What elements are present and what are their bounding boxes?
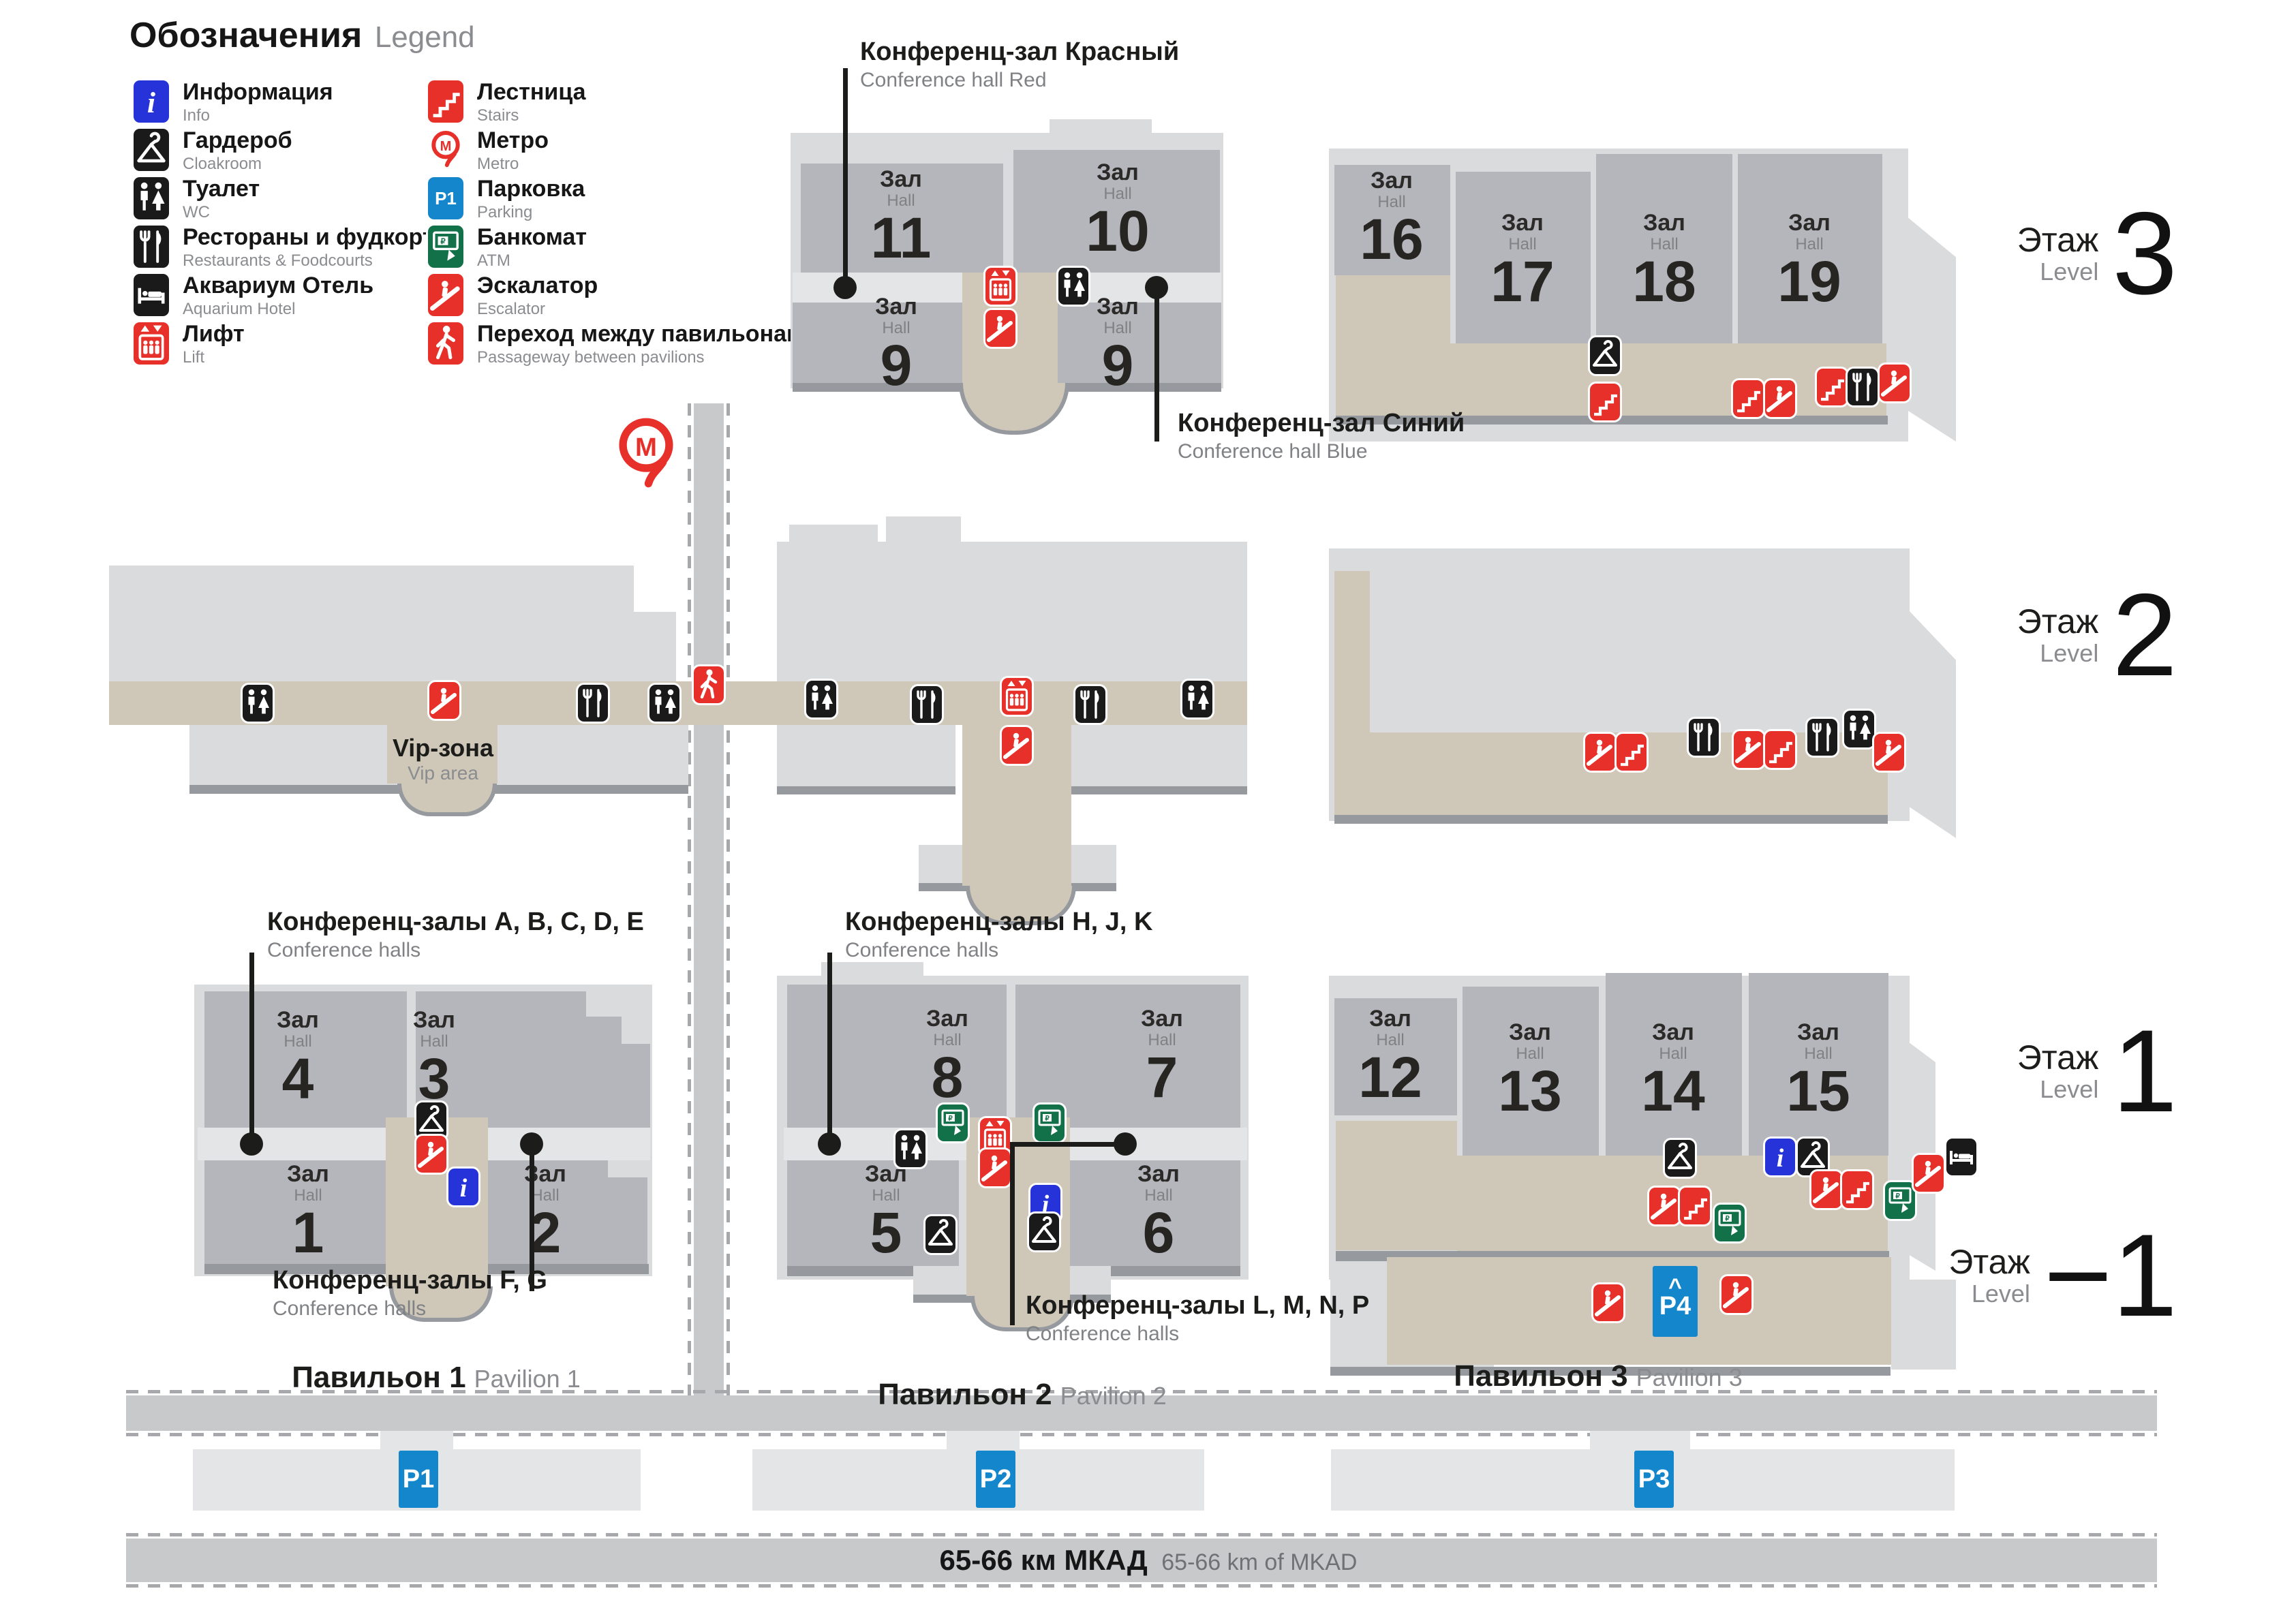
escalator-icon — [429, 682, 459, 719]
restaurant-icon — [134, 226, 169, 268]
legend-item-text: Переход между павильонамиPassageway betw… — [477, 322, 818, 368]
legend-label-en: ATM — [477, 250, 587, 271]
escalator-icon — [416, 1136, 446, 1173]
legend-label-ru: Парковка — [477, 177, 585, 202]
pavilion-label-ru: Павильон 1 — [292, 1361, 465, 1394]
callout-label-en: Conference hall Red — [860, 67, 1179, 93]
legend-item-cloakroom: ГардеробCloakroom — [134, 129, 292, 174]
legend-label-ru: Банкомат — [477, 226, 587, 250]
legend-item-text: ТуалетWC — [183, 177, 260, 223]
level-word-en: Level — [2017, 258, 2099, 285]
cloakroom-icon — [134, 129, 169, 171]
level-word-ru: Этаж — [2017, 1040, 2099, 1076]
escalator-icon — [1721, 1276, 1751, 1313]
level-number: 3 — [2112, 201, 2177, 307]
callout-line — [249, 953, 254, 1144]
legend-label-ru: Информация — [183, 80, 333, 105]
parking-badge-P2: P2 — [976, 1451, 1015, 1508]
hall-number: 5 — [865, 1205, 907, 1261]
atm-icon — [938, 1104, 968, 1141]
pavilion-label-en: Pavilion 1 — [474, 1365, 581, 1393]
callout-label-ru: Конференц-залы H, J, K — [845, 908, 1152, 938]
legend-label-ru: Лестница — [477, 80, 586, 105]
callout-line — [843, 68, 848, 288]
pavilion-label-ru: Павильон 2 — [878, 1378, 1052, 1411]
callout-label-en: Conference halls — [267, 938, 644, 963]
legend-label-en: Info — [183, 105, 333, 126]
parking-badge-P1: P1 — [399, 1451, 438, 1508]
legend-label-en: WC — [183, 202, 260, 223]
level-word-en: Level — [1948, 1280, 2030, 1308]
hall-label-15: ЗалHall15 — [1786, 1021, 1850, 1119]
legend-label-ru: Туалет — [183, 177, 260, 202]
level-word-en: Level — [2017, 640, 2099, 667]
legend-item-info: ИнформацияInfo — [134, 80, 333, 126]
hotel-icon — [134, 274, 169, 316]
escalator-icon — [1811, 1171, 1841, 1208]
pavilion-label: Павильон 1Pavilion 1 — [292, 1361, 580, 1395]
legend-label-ru: Эскалатор — [477, 274, 598, 298]
hall-label-9: ЗалHall9 — [875, 295, 917, 393]
wc-icon — [806, 681, 836, 717]
level-label-text: ЭтажLevel — [1948, 1244, 2030, 1307]
wc-icon — [649, 685, 679, 722]
stairs-icon — [1617, 734, 1647, 771]
hall-number: 1 — [287, 1205, 329, 1261]
parking-badge-P3: P3 — [1634, 1451, 1674, 1508]
callout-label-ru: Конференц-залы A, B, C, D, E — [267, 908, 644, 938]
hall-word-ru: Зал — [1498, 1021, 1561, 1045]
mkad-label-ru: 65-66 км МКАД — [940, 1544, 1148, 1576]
escalator-icon — [1002, 727, 1032, 764]
hall-label-4: ЗалHall4 — [277, 1008, 319, 1107]
hall-word-ru: Зал — [287, 1162, 329, 1187]
level-word-ru: Этаж — [1948, 1244, 2030, 1280]
restaurant-icon — [912, 686, 942, 723]
callout-dot — [1114, 1132, 1137, 1156]
callout-line — [1010, 1142, 1127, 1147]
legend-item-restaurant: Рестораны и фудкортыRestaurants & Foodco… — [134, 226, 454, 271]
legend-label-en: Aquarium Hotel — [183, 298, 373, 320]
hall-word-ru: Зал — [1097, 295, 1139, 320]
hall-label-19: ЗалHall19 — [1777, 211, 1841, 309]
stairs-icon — [1842, 1171, 1872, 1208]
vip-area-label: Vip-зона Vip area — [393, 735, 493, 784]
hall-word-ru: Зал — [875, 295, 917, 320]
hall-label-3: ЗалHall3 — [413, 1008, 455, 1107]
hall-label-6: ЗалHall6 — [1137, 1162, 1180, 1261]
callout-label: Конференц-залы L, M, N, PConference hall… — [1026, 1291, 1369, 1346]
callout-label: Конференц-залы F, GConference halls — [273, 1266, 547, 1321]
legend-item-text: МетроMetro — [477, 129, 549, 174]
level-word-ru: Этаж — [2017, 222, 2099, 258]
hall-word-ru: Зал — [1360, 169, 1423, 194]
legend-label-ru: Метро — [477, 129, 549, 153]
legend-item-passage: Переход между павильонамиPassageway betw… — [428, 322, 818, 368]
metro-pin-icon — [612, 414, 680, 497]
mkad-label: 65-66 км МКАД 65-66 km of MKAD — [940, 1544, 1358, 1577]
level-label-text: ЭтажLevel — [2017, 1040, 2099, 1102]
hall-number: 4 — [277, 1051, 319, 1107]
legend-item-text: ГардеробCloakroom — [183, 129, 292, 174]
legend-label-ru: Гардероб — [183, 129, 292, 153]
legend-item-text: ЭскалаторEscalator — [477, 274, 598, 320]
hall-word-ru: Зал — [1632, 211, 1696, 236]
hall-label-14: ЗалHall14 — [1641, 1021, 1704, 1119]
legend-title-ru: Обозначения — [129, 16, 362, 55]
vip-label-en: Vip area — [393, 762, 493, 785]
stairs-icon — [1733, 380, 1763, 417]
passage-icon — [694, 666, 724, 703]
hall-word-ru: Зал — [1358, 1007, 1422, 1032]
restaurant-icon — [1848, 369, 1878, 405]
legend-item-text: Рестораны и фудкортыRestaurants & Foodco… — [183, 226, 454, 271]
parking-badge-label: P3 — [1638, 1466, 1670, 1492]
hall-label-17: ЗалHall17 — [1490, 211, 1554, 309]
cloakroom-icon — [1029, 1214, 1059, 1250]
hall-number: 16 — [1360, 211, 1423, 267]
callout-line — [1154, 288, 1159, 442]
hall-word-ru: Зал — [1777, 211, 1841, 236]
lift-icon — [985, 268, 1015, 305]
callout-dot — [240, 1132, 263, 1156]
lift-icon — [134, 322, 169, 365]
pavilion-label-en: Pavilion 3 — [1636, 1363, 1743, 1391]
lift-icon — [1002, 678, 1032, 715]
hall-word-ru: Зал — [1786, 1021, 1850, 1045]
hall-word-ru: Зал — [277, 1008, 319, 1033]
stairs-icon — [1817, 369, 1847, 405]
legend-item-wc: ТуалетWC — [134, 177, 260, 223]
vip-label-ru: Vip-зона — [393, 735, 493, 762]
legend-item-text: ЛестницаStairs — [477, 80, 586, 126]
stairs-icon — [1680, 1188, 1710, 1224]
parking-badge-label: P2 — [980, 1466, 1011, 1492]
escalator-icon — [1765, 380, 1795, 417]
callout-dot — [520, 1132, 543, 1156]
legend-item-text: ПарковкаParking — [477, 177, 585, 223]
legend-label-en: Lift — [183, 347, 245, 368]
callout-label: Конференц-залы A, B, C, D, EConference h… — [267, 908, 644, 963]
legend-item-text: ИнформацияInfo — [183, 80, 333, 126]
escalator-icon — [1734, 731, 1764, 768]
wc-icon — [1182, 681, 1212, 717]
pavilion-label-ru: Павильон 3 — [1454, 1359, 1627, 1393]
hall-label-10: ЗалHall10 — [1086, 161, 1149, 259]
level-word-en: Level — [2017, 1076, 2099, 1103]
hall-label-16: ЗалHall16 — [1360, 169, 1423, 267]
legend-label-en: Parking — [477, 202, 585, 223]
pavilion-label: Павильон 3Pavilion 3 — [1454, 1359, 1742, 1393]
cloakroom-icon — [1665, 1140, 1695, 1177]
callout-label-ru: Конференц-залы F, G — [273, 1266, 547, 1296]
wc-icon — [896, 1130, 925, 1167]
atm-icon — [1035, 1104, 1065, 1141]
callout-label-ru: Конференц-залы L, M, N, P — [1026, 1291, 1369, 1321]
parking-badge-label: P1 — [403, 1466, 434, 1492]
level-label-text: ЭтажLevel — [2017, 604, 2099, 666]
level-label-3: ЭтажLevel3 — [2017, 201, 2177, 307]
hall-word-ru: Зал — [926, 1007, 968, 1032]
hall-number: 9 — [1097, 337, 1139, 393]
level-label-−1: ЭтажLevel−1 — [1948, 1223, 2177, 1329]
parking-roof-glyph: ^ — [1668, 1284, 1682, 1292]
escalator-icon — [980, 1149, 1010, 1186]
legend-label-ru: Лифт — [183, 322, 245, 347]
callout-dot — [1145, 276, 1168, 299]
hall-label-5: ЗалHall5 — [865, 1162, 907, 1261]
callout-label: Конференц-зал КрасныйConference hall Red — [860, 37, 1179, 93]
restaurant-icon — [1075, 686, 1105, 723]
level-word-ru: Этаж — [2017, 604, 2099, 640]
hall-word-ru: Зал — [1141, 1007, 1183, 1032]
legend-label-en: Passageway between pavilions — [477, 347, 818, 368]
hall-number: 19 — [1777, 253, 1841, 309]
floor-plan-canvas: i — [0, 0, 2296, 1623]
stairs-icon — [1765, 731, 1795, 768]
hall-label-9: ЗалHall9 — [1097, 295, 1139, 393]
callout-dot — [818, 1132, 841, 1156]
legend-item-escalator: ЭскалаторEscalator — [428, 274, 598, 320]
legend-item-atm: БанкоматATM — [428, 226, 587, 271]
hall-number: 6 — [1137, 1205, 1180, 1261]
atm-icon — [428, 226, 463, 268]
stairs-icon — [1590, 384, 1620, 420]
level-label-text: ЭтажLevel — [2017, 222, 2099, 285]
hall-number: 9 — [875, 337, 917, 393]
wc-icon — [243, 685, 273, 722]
cloakroom-icon — [1798, 1139, 1828, 1175]
info-icon — [1765, 1139, 1795, 1175]
hall-label-11: ЗалHall11 — [871, 168, 932, 266]
cloakroom-icon — [416, 1102, 446, 1139]
callout-line — [1010, 1142, 1015, 1325]
legend-label-en: Metro — [477, 153, 549, 174]
legend-title-en: Legend — [375, 20, 475, 54]
metro-icon — [428, 129, 463, 172]
escalator-icon — [428, 274, 463, 316]
level-number: −1 — [2044, 1223, 2177, 1329]
level-label-1: ЭтажLevel1 — [2017, 1019, 2177, 1124]
hall-word-ru: Зал — [1490, 211, 1554, 236]
level-label-2: ЭтажLevel2 — [2017, 583, 2177, 688]
hall-number: 7 — [1141, 1049, 1183, 1105]
hall-label-13: ЗалHall13 — [1498, 1021, 1561, 1119]
parking-icon: P1 — [428, 177, 463, 219]
legend-item-text: Аквариум ОтельAquarium Hotel — [183, 274, 373, 320]
info-icon — [448, 1169, 478, 1205]
legend-label-en: Stairs — [477, 105, 586, 126]
legend-item-metro: МетроMetro — [428, 129, 549, 174]
wc-icon — [1844, 711, 1874, 747]
hall-number: 10 — [1086, 203, 1149, 259]
callout-line — [827, 953, 832, 1144]
hall-word-ru: Зал — [1086, 161, 1149, 185]
hall-label-12: ЗалHall12 — [1358, 1007, 1422, 1105]
hall-label-18: ЗалHall18 — [1632, 211, 1696, 309]
callout-label-ru: Конференц-зал Синий — [1178, 409, 1465, 439]
escalator-icon — [1585, 734, 1615, 771]
pavilion-label-en: Pavilion 2 — [1060, 1382, 1167, 1410]
hotel-icon — [1946, 1139, 1976, 1175]
hall-number: 3 — [413, 1051, 455, 1107]
legend-label-ru: Аквариум Отель — [183, 274, 373, 298]
restaurant-icon — [1807, 719, 1837, 756]
legend-item-stairs: ЛестницаStairs — [428, 80, 586, 126]
pavilion-label: Павильон 2Pavilion 2 — [878, 1378, 1166, 1412]
callout-label-en: Conference hall Blue — [1178, 439, 1465, 465]
legend-label-ru: Рестораны и фудкорты — [183, 226, 454, 250]
hall-number: 15 — [1786, 1063, 1850, 1119]
wc-icon — [134, 177, 169, 219]
legend-item-text: БанкоматATM — [477, 226, 587, 271]
callout-dot — [833, 276, 857, 299]
legend-label-en: Restaurants & Foodcourts — [183, 250, 454, 271]
info-icon — [134, 80, 169, 123]
hall-number: 13 — [1498, 1063, 1561, 1119]
escalator-icon — [1874, 734, 1904, 771]
callout-label-en: Conference halls — [273, 1296, 547, 1322]
legend-label-en: Escalator — [477, 298, 598, 320]
hall-word-ru: Зал — [871, 168, 932, 192]
legend-item-hotel: Аквариум ОтельAquarium Hotel — [134, 274, 373, 320]
legend-item-parking: P1ПарковкаParking — [428, 177, 585, 223]
level-number: 2 — [2112, 583, 2177, 688]
escalator-icon — [1649, 1188, 1679, 1224]
parking-badge-P4: ^P4 — [1653, 1266, 1698, 1337]
callout-label: Конференц-зал СинийConference hall Blue — [1178, 409, 1465, 464]
hall-number: 17 — [1490, 253, 1554, 309]
callout-label: Конференц-залы H, J, KConference halls — [845, 908, 1152, 963]
cloakroom-icon — [1590, 337, 1620, 374]
mkad-label-en: 65-66 km of MKAD — [1161, 1549, 1357, 1575]
legend-title: Обозначения Legend — [129, 15, 475, 56]
legend-label-ru: Переход между павильонами — [477, 322, 818, 347]
restaurant-icon — [1689, 719, 1719, 756]
callout-label-en: Conference halls — [1026, 1321, 1369, 1347]
level-number: 1 — [2112, 1019, 2177, 1124]
atm-icon — [1715, 1205, 1745, 1241]
restaurant-icon — [578, 685, 608, 722]
hall-number: 14 — [1641, 1063, 1704, 1119]
legend-label-en: Cloakroom — [183, 153, 292, 174]
hall-word-ru: Зал — [413, 1008, 455, 1033]
escalator-icon — [1914, 1155, 1944, 1192]
escalator-icon — [985, 310, 1015, 347]
passage-icon — [428, 322, 463, 365]
hall-number: 18 — [1632, 253, 1696, 309]
legend-item-text: ЛифтLift — [183, 322, 245, 368]
hall-label-1: ЗалHall1 — [287, 1162, 329, 1261]
hall-word-ru: Зал — [1641, 1021, 1704, 1045]
escalator-icon — [1880, 365, 1910, 401]
atm-icon — [1885, 1182, 1915, 1219]
callout-label-ru: Конференц-зал Красный — [860, 37, 1179, 67]
callout-label-en: Conference halls — [845, 938, 1152, 963]
stairs-icon — [428, 80, 463, 123]
cloakroom-icon — [925, 1216, 955, 1253]
hall-number: 8 — [926, 1049, 968, 1105]
legend-item-lift: ЛифтLift — [134, 322, 245, 368]
hall-number: 12 — [1358, 1049, 1422, 1105]
hall-label-8: ЗалHall8 — [926, 1007, 968, 1105]
hall-label-7: ЗалHall7 — [1141, 1007, 1183, 1105]
wc-icon — [1058, 268, 1088, 305]
escalator-icon — [1593, 1284, 1623, 1321]
hall-number: 11 — [871, 210, 932, 266]
parking-badge-label: P4 — [1659, 1293, 1691, 1319]
hall-word-ru: Зал — [1137, 1162, 1180, 1187]
